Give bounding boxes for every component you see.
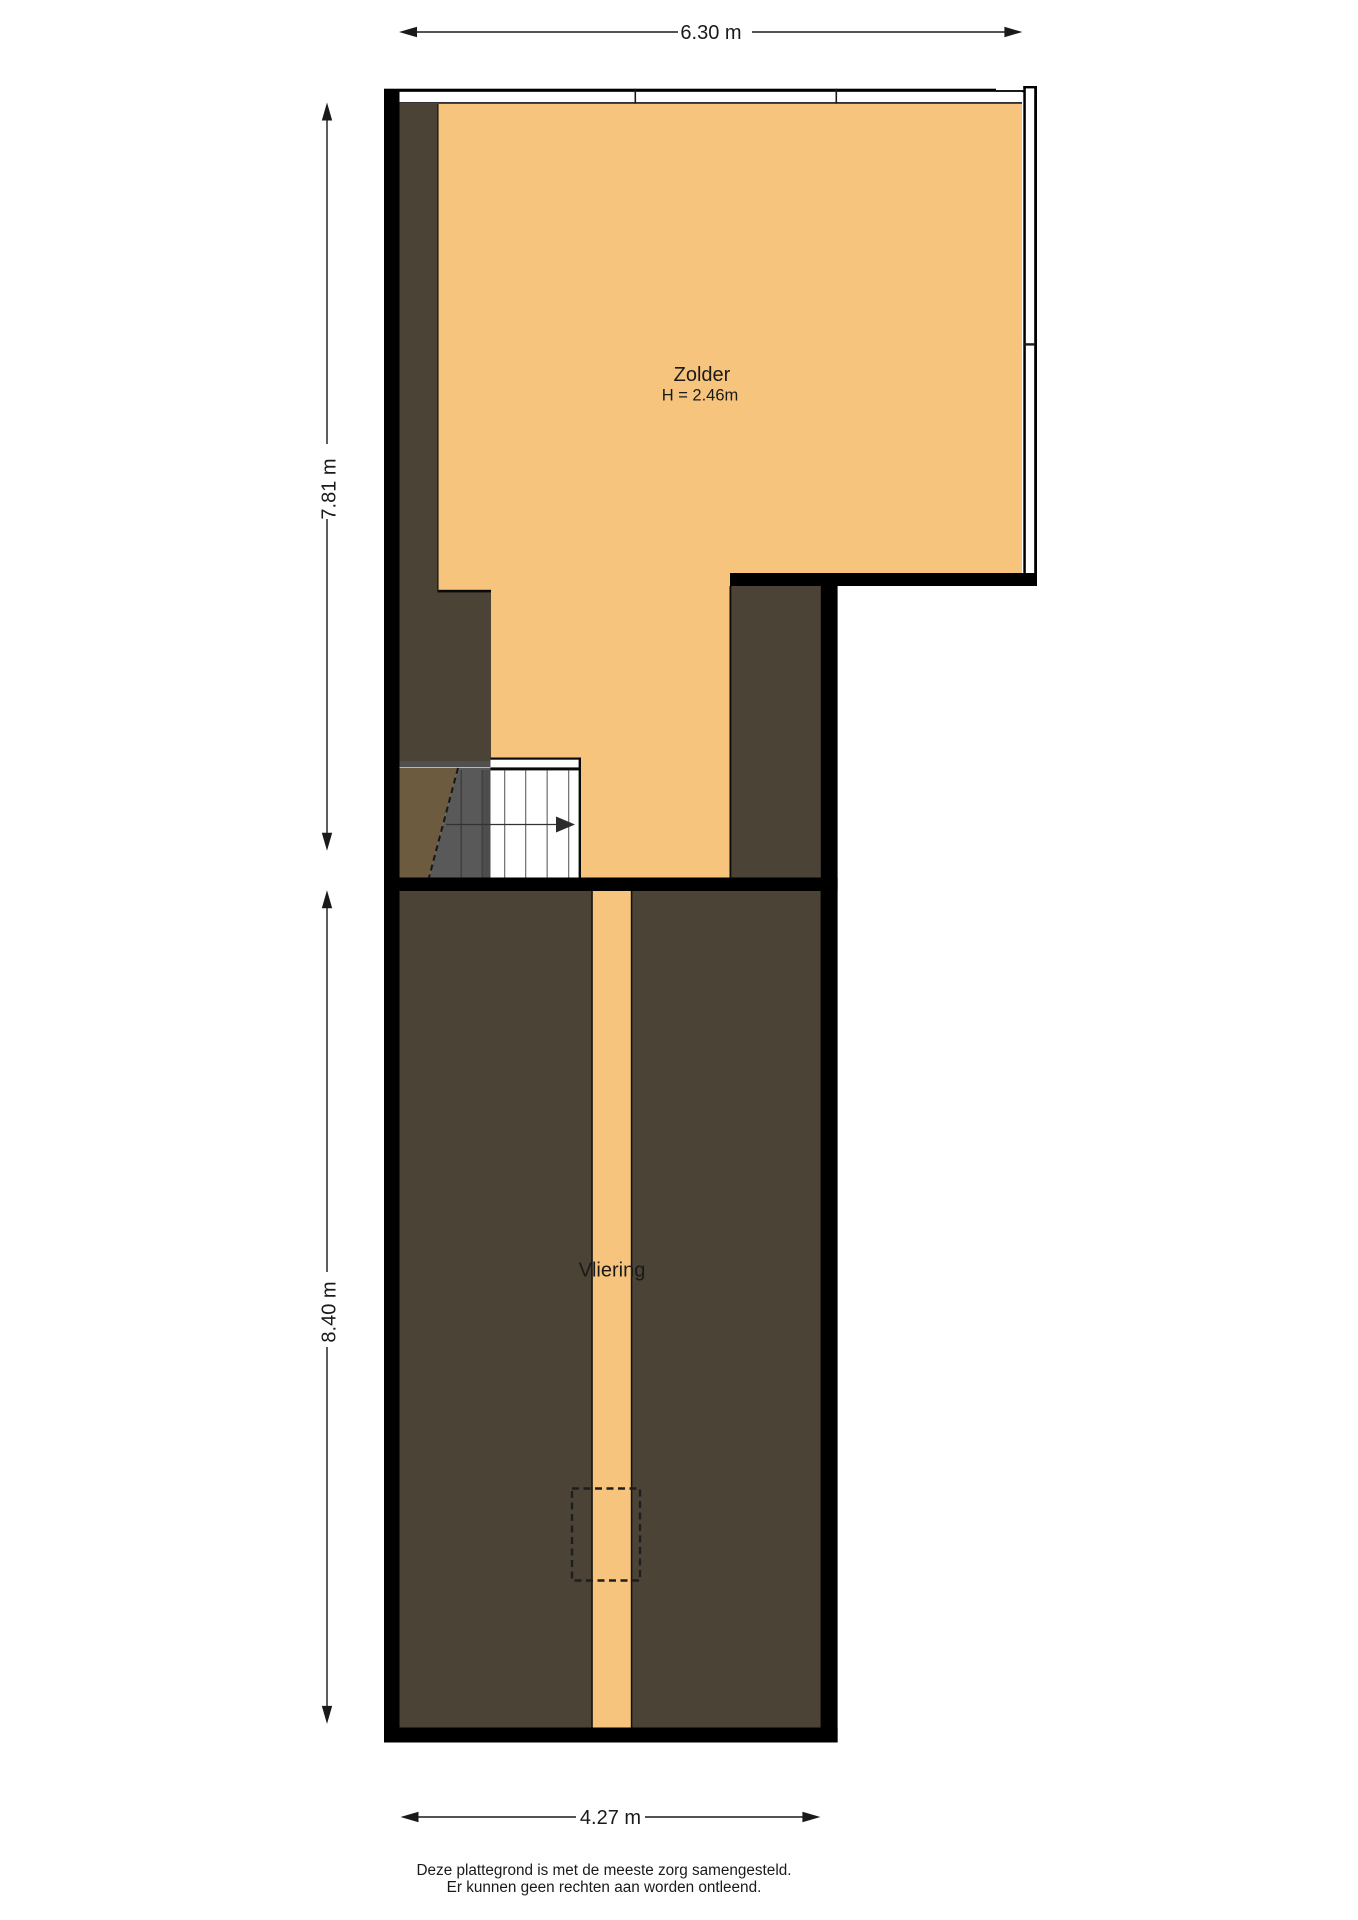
svg-text:6.30 m: 6.30 m [680,22,741,44]
svg-text:4.27 m: 4.27 m [580,1807,641,1829]
svg-text:8.40 m: 8.40 m [319,1281,341,1342]
svg-text:Zolder: Zolder [674,364,731,386]
svg-text:Er kunnen geen rechten aan wor: Er kunnen geen rechten aan worden ontlee… [447,1879,762,1896]
svg-text:7.81 m: 7.81 m [319,458,341,519]
svg-text:Vliering: Vliering [579,1260,646,1282]
svg-text:H = 2.46m: H = 2.46m [662,387,739,405]
svg-text:Deze plattegrond is met de mee: Deze plattegrond is met de meeste zorg s… [417,1862,792,1879]
